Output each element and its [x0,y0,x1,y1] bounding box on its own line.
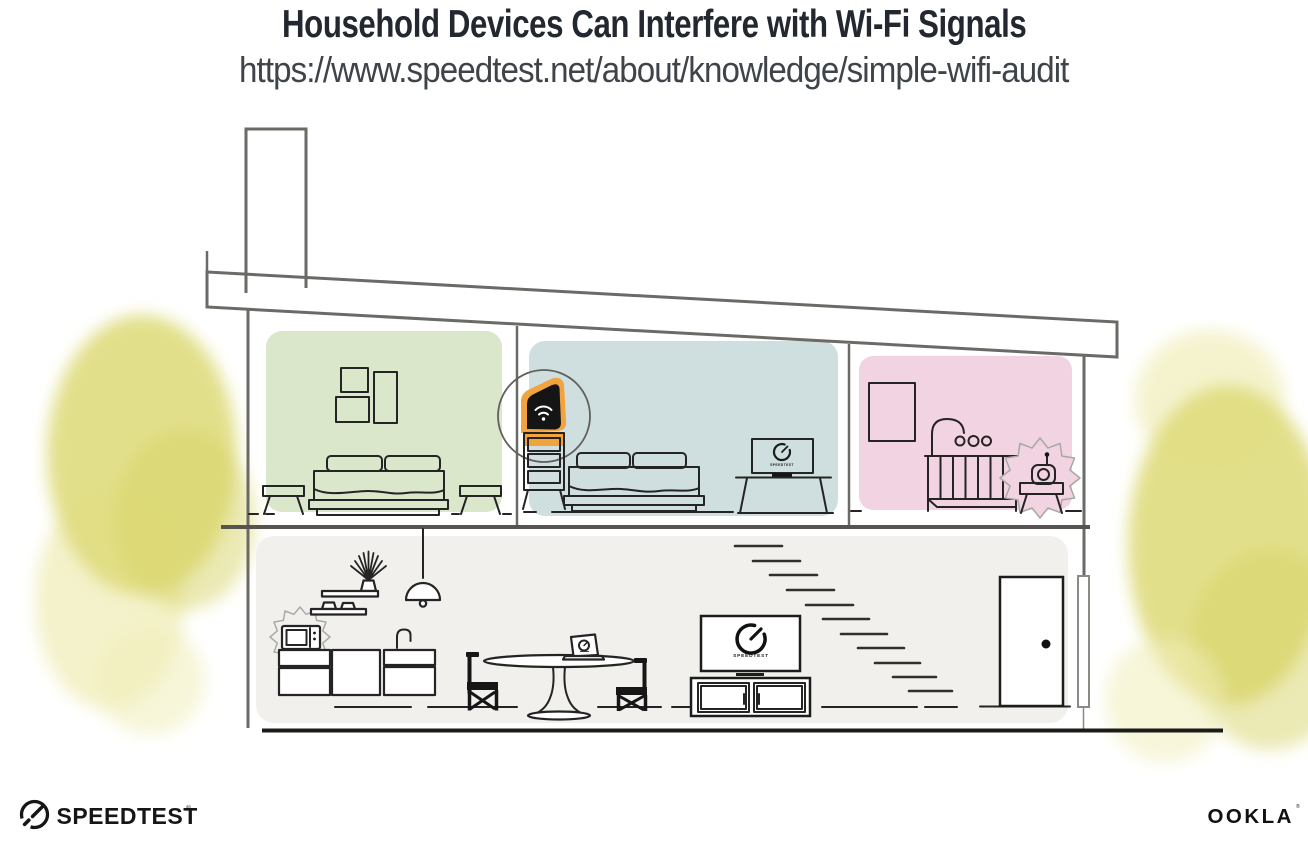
wifi-router-group [521,378,566,509]
header: Household Devices Can Interfere with Wi-… [0,2,1308,92]
page-title: Household Devices Can Interfere with Wi-… [282,2,1026,48]
ookla-logo: OOKLA ® [1207,803,1300,828]
speedtest-registered-mark: ® [186,804,191,812]
downspout-pipe [1078,576,1089,707]
door-knob [1042,640,1051,649]
speedtest-wordmark: SPEEDTEST [57,803,198,829]
foliage-right [1105,330,1308,762]
monitor-stand [772,473,792,477]
speedtest-logo: SPEEDTEST ® [22,802,198,830]
chimney [246,129,306,293]
house-illustration: SPEEDTEST [0,0,1308,861]
ookla-wordmark: OOKLA [1207,805,1294,828]
plant-pot [361,581,376,592]
microwave [282,626,320,649]
front-door [1000,577,1063,706]
tv-screen-label: SPEEDTEST [733,653,769,659]
floor-lines-blue [524,512,833,513]
tv-stand [736,673,764,676]
monitor-screen-label: SPEEDTEST [770,463,794,467]
ookla-registered-mark: ® [1296,803,1300,810]
source-url: https://www.speedtest.net/about/knowledg… [239,48,1068,92]
tv-console [691,678,810,716]
speedtest-tv: SPEEDTEST [701,616,800,676]
bedroom-green-wall [266,331,502,512]
